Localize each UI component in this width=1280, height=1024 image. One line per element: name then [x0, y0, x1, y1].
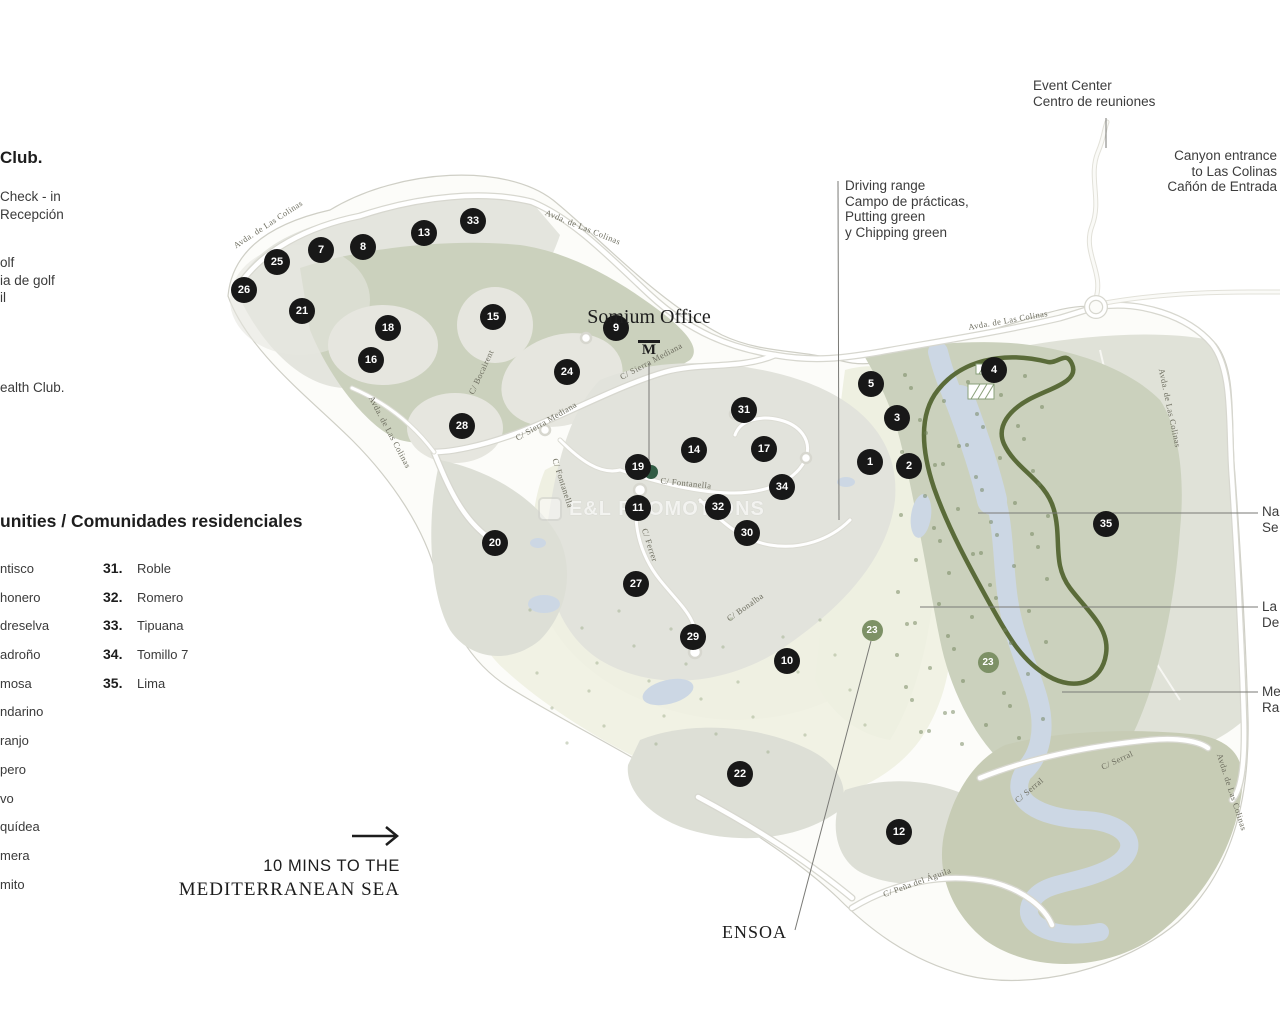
- sea-note: 10 MINS TO THE MEDITERRANEAN SEA: [179, 857, 400, 901]
- community-number: 35.: [103, 675, 137, 691]
- community-name: Roble: [137, 561, 171, 576]
- label-line: Check - in: [0, 188, 64, 206]
- label-line: to Las Colinas: [1167, 164, 1277, 180]
- sea-note-line2: MEDITERRANEAN SEA: [179, 879, 400, 901]
- label-line: Canyon entrance: [1167, 148, 1277, 164]
- community-item: 34.Tomillo 7: [103, 646, 188, 675]
- community-item-fragment: ranjo: [0, 733, 49, 762]
- map-marker-11[interactable]: 11: [625, 495, 651, 521]
- right-edge-label-line: De: [1262, 615, 1279, 631]
- map-marker-17[interactable]: 17: [751, 436, 777, 462]
- map-marker-3[interactable]: 3: [884, 405, 910, 431]
- label-line: Recepción: [0, 206, 64, 224]
- club-heading-fragment: Club.: [0, 148, 43, 168]
- map-marker-1[interactable]: 1: [857, 449, 883, 475]
- watermark-logo: [538, 497, 562, 521]
- label-line: il: [0, 289, 55, 307]
- map-marker-16[interactable]: 16: [358, 347, 384, 373]
- map-marker-29[interactable]: 29: [680, 624, 706, 650]
- somium-logo: M: [638, 340, 660, 358]
- label-line: Putting green: [845, 209, 969, 225]
- sea-note-line1: 10 MINS TO THE: [179, 857, 400, 876]
- community-item: 33.Tipuana: [103, 617, 188, 646]
- communities-list-right: 31.Roble32.Romero33.Tipuana34.Tomillo 73…: [103, 560, 188, 703]
- map-marker-19[interactable]: 19: [625, 454, 651, 480]
- label-line: Cañón de Entrada: [1167, 179, 1277, 195]
- map-marker-10[interactable]: 10: [774, 648, 800, 674]
- map-marker-31[interactable]: 31: [731, 397, 757, 423]
- somium-office-label: Somium Office: [587, 310, 711, 326]
- driving-range-label: Driving rangeCampo de prácticas,Putting …: [845, 178, 969, 240]
- map-marker-25[interactable]: 25: [264, 249, 290, 275]
- label-line: Event Center: [1033, 78, 1155, 94]
- checkin-label: Check - inRecepción: [0, 188, 64, 223]
- map-marker-33[interactable]: 33: [460, 208, 486, 234]
- golf-labels: olfia de golfil: [0, 254, 55, 307]
- site-plan-page: E&L PROMOTIONS Avda. de Las ColinasAvda.…: [0, 0, 1280, 1024]
- community-item-fragment: ntisco: [0, 561, 49, 590]
- map-marker-8[interactable]: 8: [350, 234, 376, 260]
- community-item: 35.Lima: [103, 675, 188, 704]
- community-name: Tipuana: [137, 618, 184, 633]
- right-edge-label: NaSe: [1262, 504, 1279, 535]
- community-number: 33.: [103, 617, 137, 633]
- community-item: 31.Roble: [103, 560, 188, 589]
- map-marker-23[interactable]: 23: [978, 652, 999, 673]
- community-number: 32.: [103, 589, 137, 605]
- right-edge-label: LaDe: [1262, 599, 1279, 630]
- right-edge-label-line: Ra: [1262, 700, 1280, 716]
- map-marker-34[interactable]: 34: [769, 474, 795, 500]
- map-marker-4[interactable]: 4: [981, 357, 1007, 383]
- ensoa-label: ENSOA: [722, 925, 787, 941]
- community-item-fragment: dreselva: [0, 618, 49, 647]
- label-line: olf: [0, 254, 55, 272]
- community-item-fragment: vo: [0, 791, 49, 820]
- map-marker-21[interactable]: 21: [289, 298, 315, 324]
- map-marker-30[interactable]: 30: [734, 520, 760, 546]
- watermark-text: E&L PROMOTIONS: [569, 498, 765, 521]
- map-marker-13[interactable]: 13: [411, 220, 437, 246]
- community-number: 34.: [103, 646, 137, 662]
- map-marker-23[interactable]: 23: [862, 620, 883, 641]
- community-item-fragment: mera: [0, 848, 49, 877]
- map-marker-18[interactable]: 18: [375, 315, 401, 341]
- map-marker-35[interactable]: 35: [1093, 511, 1119, 537]
- label-line: Driving range: [845, 178, 969, 194]
- right-edge-label-line: La: [1262, 599, 1279, 615]
- community-name: Tomillo 7: [137, 647, 188, 662]
- community-item-fragment: mosa: [0, 676, 49, 705]
- community-item-fragment: honero: [0, 590, 49, 619]
- map-marker-20[interactable]: 20: [482, 530, 508, 556]
- community-name: Romero: [137, 590, 183, 605]
- label-line: Centro de reuniones: [1033, 94, 1155, 110]
- canyon-entrance-label: Canyon entranceto Las ColinasCañón de En…: [1167, 148, 1277, 195]
- right-edge-label-line: Se: [1262, 520, 1279, 536]
- right-edge-label-line: Me: [1262, 684, 1280, 700]
- event-center-label: Event CenterCentro de reuniones: [1033, 78, 1155, 109]
- map-marker-22[interactable]: 22: [727, 761, 753, 787]
- communities-list-left: ntiscohonerodreselvaadroñomosandarinoran…: [0, 561, 49, 905]
- community-item-fragment: mito: [0, 877, 49, 906]
- map-marker-12[interactable]: 12: [886, 819, 912, 845]
- health-club-fragment: ealth Club.: [0, 379, 65, 397]
- map-marker-14[interactable]: 14: [681, 437, 707, 463]
- right-edge-label-line: Na: [1262, 504, 1279, 520]
- map-marker-27[interactable]: 27: [623, 571, 649, 597]
- community-item-fragment: adroño: [0, 647, 49, 676]
- map-marker-7[interactable]: 7: [308, 237, 334, 263]
- map-marker-26[interactable]: 26: [231, 277, 257, 303]
- label-line: Campo de prácticas,: [845, 194, 969, 210]
- sea-arrow-icon: [345, 820, 405, 850]
- map-marker-2[interactable]: 2: [896, 453, 922, 479]
- community-item-fragment: quídea: [0, 819, 49, 848]
- community-item-fragment: ndarino: [0, 704, 49, 733]
- community-item-fragment: pero: [0, 762, 49, 791]
- map-marker-32[interactable]: 32: [705, 494, 731, 520]
- community-number: 31.: [103, 560, 137, 576]
- label-line: ia de golf: [0, 272, 55, 290]
- community-item: 32.Romero: [103, 589, 188, 618]
- community-name: Lima: [137, 676, 165, 691]
- communities-heading: unities / Comunidades residenciales: [0, 511, 302, 532]
- label-line: y Chipping green: [845, 225, 969, 241]
- map-marker-5[interactable]: 5: [858, 371, 884, 397]
- right-edge-label: MeRa: [1262, 684, 1280, 715]
- map-marker-28[interactable]: 28: [449, 413, 475, 439]
- map-marker-15[interactable]: 15: [480, 304, 506, 330]
- map-marker-24[interactable]: 24: [554, 359, 580, 385]
